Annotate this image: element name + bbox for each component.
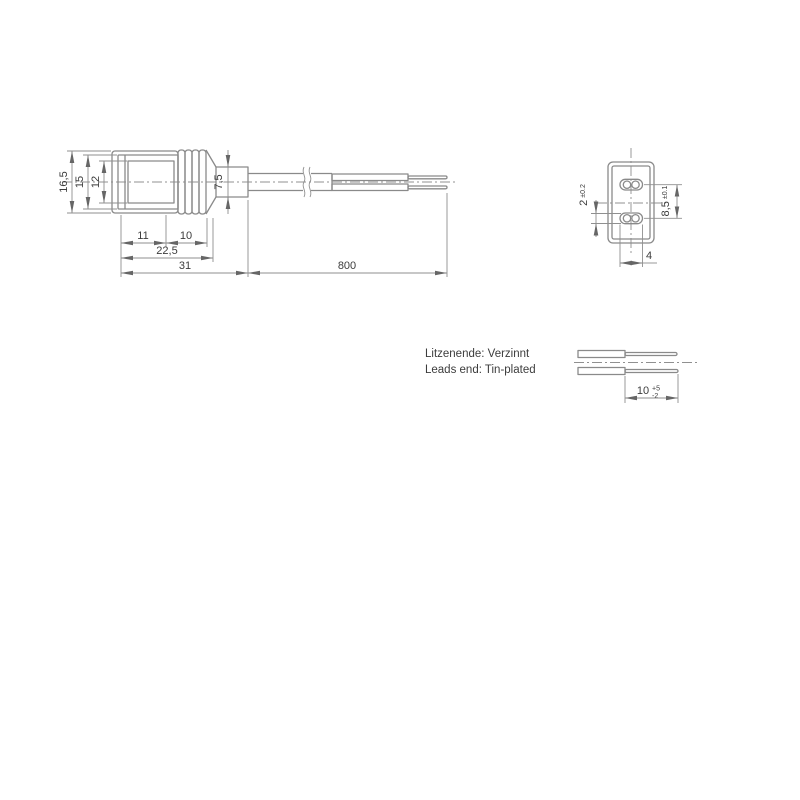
contact-hole (623, 181, 630, 188)
gland-taper-bottom (206, 197, 216, 214)
lead-bottom-insulated (578, 368, 625, 375)
gland-taper-top (206, 150, 216, 167)
leads-note-german: Litzenende: Verzinnt (425, 348, 530, 360)
lead-top-tinned (408, 176, 447, 179)
contact-hole (632, 181, 639, 188)
dim-height-body-label: 15 (74, 176, 86, 188)
dim-tinned-length-label: 10 (637, 385, 649, 397)
dim-tinned-tol-minus: -2 (652, 393, 658, 400)
slot-height-dimension: 2±0.2 (578, 184, 621, 237)
lead-top-insulated (578, 351, 625, 358)
dim-height-outer-label: 16,5 (58, 171, 70, 192)
dim-gland-diameter-label: 7,5 (213, 174, 225, 189)
lead-bottom-tinned (408, 186, 447, 189)
dim-body-length-label: 22,5 (156, 245, 177, 257)
dim-cable-length-label: 800 (338, 260, 356, 272)
lead-top-tinned (625, 353, 677, 356)
dim-tinned-tol-plus: +5 (652, 386, 660, 393)
dim-head-length-label: 31 (179, 260, 191, 272)
side-view: 16,5 15 12 7,5 11 (58, 150, 456, 277)
lead-bottom-insulated (332, 184, 408, 191)
drawing-canvas: 16,5 15 12 7,5 11 (0, 0, 800, 800)
dim-slot-height-label: 2±0.2 (578, 184, 590, 206)
dim-slot-width-label: 4 (646, 250, 652, 262)
side-view-length-dimensions: 11 10 22,5 31 800 (121, 193, 447, 277)
dim-ribs-length-label: 10 (180, 230, 192, 242)
dim-height-face-label: 12 (90, 176, 102, 188)
contact-hole (623, 215, 630, 222)
slot-width-dimension: 4 (620, 225, 657, 268)
technical-drawing: 16,5 15 12 7,5 11 (0, 0, 800, 800)
dim-slot-pitch-label: 8,5±0.1 (660, 185, 672, 216)
tinned-length-dimension: 10 +5 -2 (625, 374, 678, 403)
contact-hole (632, 215, 639, 222)
leads-detail: Litzenende: Verzinnt Leads end: Tin-plat… (425, 348, 697, 403)
lead-top-insulated (332, 174, 408, 181)
lead-bottom-tinned (625, 370, 678, 373)
leads-note-english: Leads end: Tin-plated (425, 364, 536, 376)
dim-front-length-label: 11 (137, 230, 148, 242)
face-view: 2±0.2 8,5±0.1 4 (578, 148, 682, 267)
